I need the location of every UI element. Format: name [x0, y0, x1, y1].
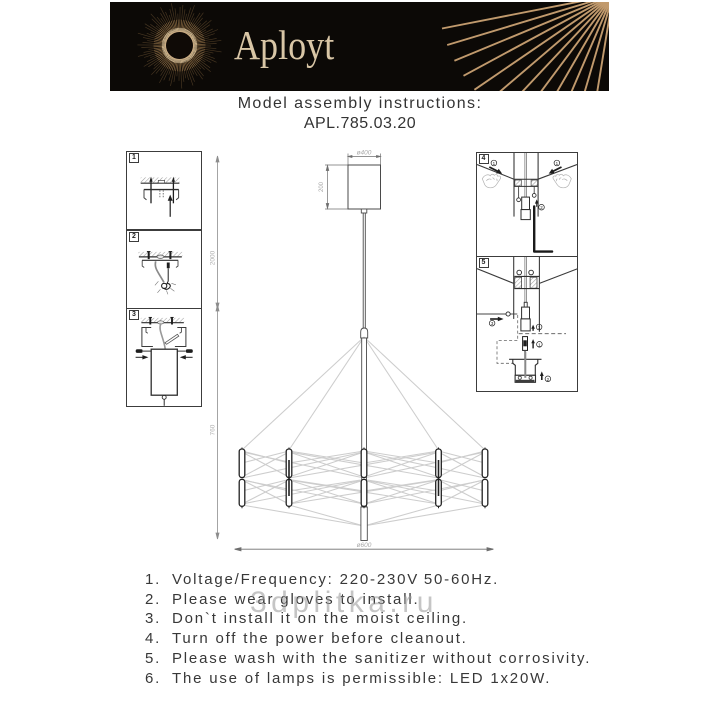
svg-text:2000: 2000	[210, 250, 217, 265]
svg-text:200: 200	[319, 181, 325, 192]
svg-text:ø400: ø400	[357, 150, 372, 157]
svg-text:ø600: ø600	[357, 542, 372, 549]
svg-text:760: 760	[210, 424, 217, 435]
